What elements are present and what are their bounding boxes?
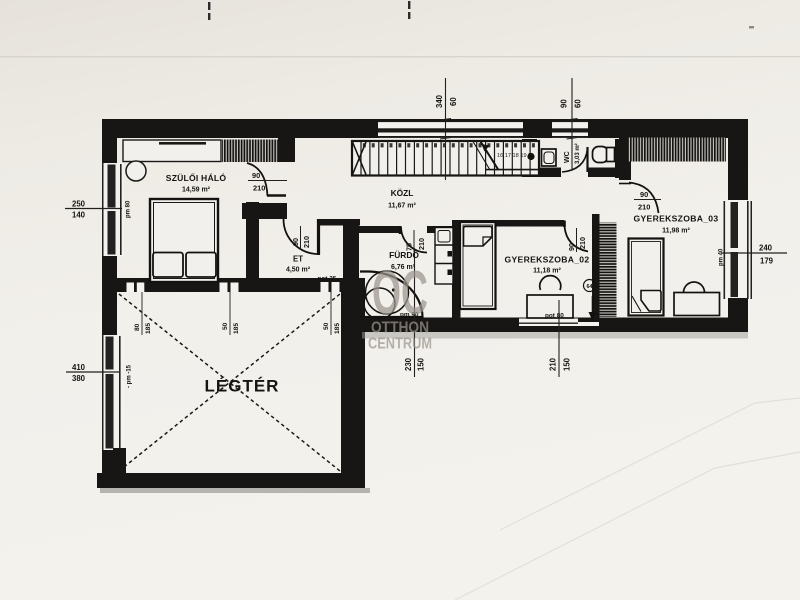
svg-text:210: 210	[638, 203, 650, 212]
svg-text:240: 240	[759, 244, 773, 253]
svg-text:- pm -15: - pm -15	[127, 364, 133, 388]
svg-text:16 17 18 19 2: 16 17 18 19 2	[497, 153, 531, 159]
svg-text:ET: ET	[293, 255, 303, 264]
svg-text:185: 185	[334, 323, 341, 334]
svg-text:140: 140	[72, 211, 86, 220]
svg-text:250: 250	[72, 200, 86, 209]
svg-text:75: 75	[405, 243, 414, 251]
svg-text:90: 90	[567, 243, 576, 251]
svg-text:11,98 m²: 11,98 m²	[662, 228, 690, 235]
svg-text:185: 185	[233, 323, 240, 334]
svg-text:210: 210	[549, 357, 558, 371]
svg-text:179: 179	[760, 257, 774, 266]
svg-text:150: 150	[417, 357, 426, 371]
svg-text:pm 40: pm 40	[719, 248, 725, 266]
svg-text:GYEREKSZOBA_02: GYEREKSZOBA_02	[505, 255, 590, 265]
svg-text:210: 210	[302, 236, 311, 248]
svg-text:185: 185	[145, 323, 152, 334]
svg-text:210: 210	[253, 184, 265, 193]
svg-text:50: 50	[323, 322, 330, 330]
svg-text:210: 210	[578, 237, 587, 249]
svg-text:WC: WC	[564, 151, 571, 163]
svg-text:340: 340	[435, 94, 444, 108]
svg-text:4,50 m²: 4,50 m²	[286, 267, 311, 274]
svg-text:150: 150	[563, 357, 572, 371]
svg-text:90: 90	[291, 238, 300, 246]
svg-text:pot 25: pot 25	[318, 276, 337, 283]
svg-text:50: 50	[222, 322, 229, 330]
svg-text:GYEREKSZOBA_03: GYEREKSZOBA_03	[634, 214, 719, 224]
svg-text:230: 230	[404, 357, 413, 371]
svg-text:11,18 m²: 11,18 m²	[533, 268, 561, 275]
svg-text:pot 80: pot 80	[545, 313, 564, 320]
svg-text:CENTRUM: CENTRUM	[368, 336, 432, 353]
svg-text:380: 380	[72, 374, 86, 383]
svg-text:OTTHON: OTTHON	[371, 320, 429, 337]
svg-text:KÖZL: KÖZL	[391, 188, 414, 198]
svg-text:3,03 m²: 3,03 m²	[574, 143, 581, 164]
svg-text:90: 90	[252, 171, 260, 180]
svg-text:410: 410	[72, 363, 86, 372]
svg-text:90: 90	[560, 99, 569, 108]
svg-text:SZÜLŐI HÁLÓ: SZÜLŐI HÁLÓ	[166, 172, 227, 183]
svg-text:60: 60	[449, 97, 458, 106]
svg-text:14,59 m²: 14,59 m²	[182, 187, 211, 194]
svg-text:11,67 m²: 11,67 m²	[388, 203, 416, 210]
svg-text:LÉGTÉR: LÉGTÉR	[205, 377, 280, 396]
svg-text:OC: OC	[372, 259, 428, 328]
svg-text:80: 80	[134, 323, 141, 331]
svg-text:210: 210	[417, 238, 426, 250]
svg-text:90: 90	[640, 190, 648, 199]
svg-text:pm 80: pm 80	[126, 200, 132, 218]
svg-text:64: 64	[587, 284, 593, 290]
svg-text:60: 60	[574, 99, 583, 108]
